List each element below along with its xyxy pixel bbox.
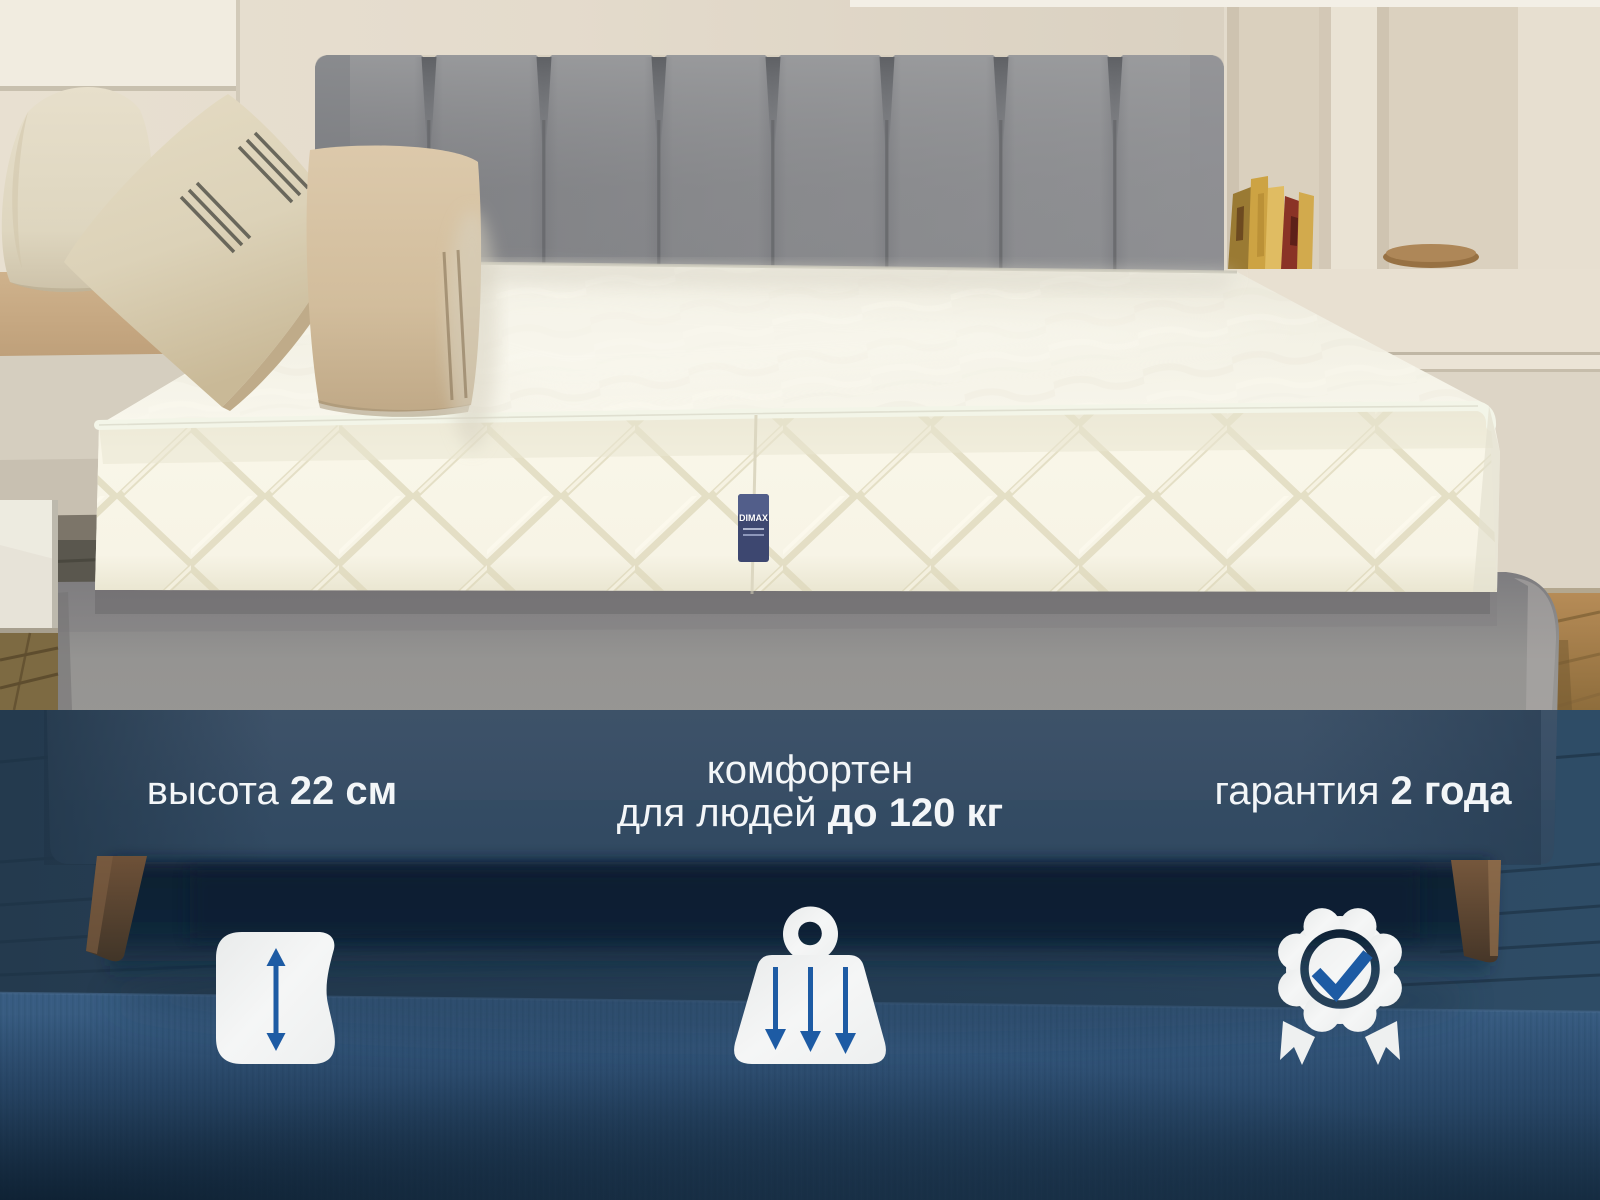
svg-text:DIMAX: DIMAX [739, 513, 768, 523]
svg-text:комфортен: комфортен [707, 748, 913, 792]
svg-text:для людей до 120 кг: для людей до 120 кг [617, 791, 1003, 835]
svg-text:высота 22 см: высота 22 см [147, 769, 398, 813]
svg-text:гарантия 2 года: гарантия 2 года [1214, 769, 1512, 813]
